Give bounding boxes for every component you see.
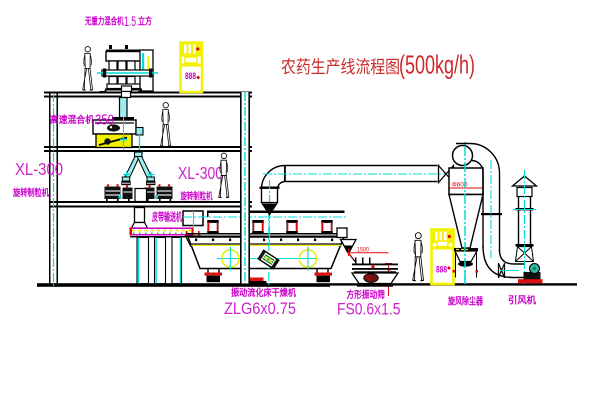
svg-text:888: 888 xyxy=(185,71,196,81)
svg-text:(500kg/h): (500kg/h) xyxy=(399,50,475,80)
svg-text:1500: 1500 xyxy=(357,248,370,254)
svg-text:1.5: 1.5 xyxy=(124,13,136,29)
svg-text:立方: 立方 xyxy=(138,16,152,28)
svg-text:XL-300: XL-300 xyxy=(178,163,223,183)
svg-text:ZLG6x0.75: ZLG6x0.75 xyxy=(224,299,296,318)
svg-text:旋风除尘器: 旋风除尘器 xyxy=(447,296,483,308)
svg-text:皮带输送机: 皮带输送机 xyxy=(151,210,182,224)
svg-text:农药生产线流程图: 农药生产线流程图 xyxy=(281,57,400,77)
svg-text:旋转制粒机: 旋转制粒机 xyxy=(180,191,213,203)
svg-text:引风机: 引风机 xyxy=(508,295,536,307)
svg-text:振动流化床干燥机: 振动流化床干燥机 xyxy=(231,287,296,299)
svg-text:350: 350 xyxy=(95,113,114,129)
svg-text:高速混合机: 高速混合机 xyxy=(50,114,94,126)
svg-text:无重力混合机: 无重力混合机 xyxy=(84,16,124,28)
svg-text:旋转制粒机: 旋转制粒机 xyxy=(12,187,49,199)
svg-text:XL-300: XL-300 xyxy=(15,159,63,179)
svg-text:888: 888 xyxy=(436,265,447,275)
svg-text:FS0.6x1.5: FS0.6x1.5 xyxy=(337,300,401,319)
